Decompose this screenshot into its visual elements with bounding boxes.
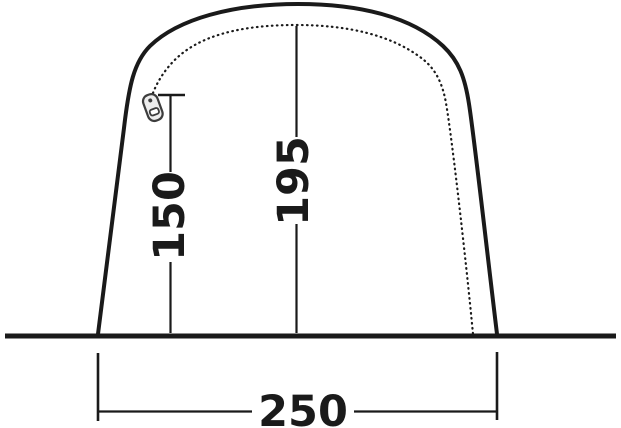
base-width-label: 250 bbox=[258, 387, 348, 428]
side-height-dimension: 150 bbox=[145, 95, 195, 333]
center-height-dimension: 195 bbox=[269, 26, 319, 333]
zipper-pull-icon bbox=[141, 92, 164, 123]
zipper-pull-body bbox=[141, 92, 164, 123]
diagram-canvas: 150 195 250 bbox=[0, 0, 621, 428]
base-width-dimension: 250 bbox=[98, 352, 497, 428]
center-height-label: 195 bbox=[269, 136, 319, 226]
side-height-label: 150 bbox=[145, 171, 195, 261]
tent-dimension-diagram: 150 195 250 bbox=[0, 0, 621, 428]
